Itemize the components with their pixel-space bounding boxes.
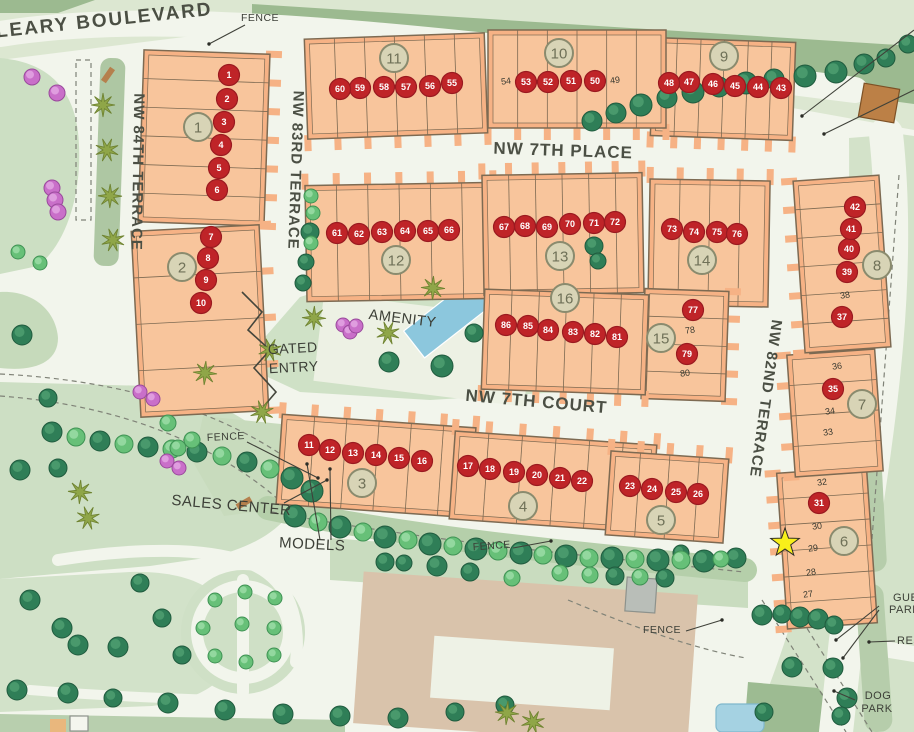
building-number-text: 3 [358, 475, 366, 492]
tree-highlight [133, 576, 142, 585]
lot-marker-76: 76 [727, 224, 748, 245]
lot-number: 85 [523, 321, 533, 331]
tree-highlight [241, 656, 248, 663]
lot-marker-26: 26 [688, 484, 709, 505]
building-1 [138, 46, 282, 230]
tree-highlight [826, 660, 836, 670]
tree-highlight [162, 417, 170, 425]
lot-marker-57: 57 [396, 77, 417, 98]
building-number-16: 16 [551, 284, 579, 312]
tree-highlight [303, 225, 312, 234]
tree-highlight [23, 592, 33, 602]
tree-highlight [26, 71, 34, 79]
lot-marker-74: 74 [684, 222, 705, 243]
tree-highlight [71, 637, 81, 647]
tree-highlight [41, 391, 50, 400]
tree-highlight [135, 386, 142, 393]
lot-marker-62: 62 [349, 224, 370, 245]
lot-number: 3 [221, 117, 226, 127]
lot-number: 13 [348, 448, 358, 458]
lot-number: 16 [417, 456, 427, 466]
lot-marker-41: 41 [841, 219, 862, 240]
tree-highlight [276, 706, 286, 716]
building-number-text: 10 [551, 45, 568, 62]
tree-highlight [210, 594, 217, 601]
lot-marker-17: 17 [458, 456, 479, 477]
building-number-15: 15 [647, 324, 675, 352]
lot-number-plain-36: 36 [831, 361, 842, 372]
tree-highlight [592, 255, 600, 263]
tree-highlight [584, 569, 592, 577]
lot-number: 18 [485, 464, 495, 474]
lot-marker-66: 66 [439, 220, 460, 241]
leader-dot [325, 478, 328, 481]
lot-marker-19: 19 [504, 462, 525, 483]
tree-highlight [422, 535, 433, 546]
lot-number: 17 [463, 461, 473, 471]
lot-marker-2: 2 [217, 89, 238, 110]
tree-highlight [13, 246, 20, 253]
tree-highlight [634, 571, 642, 579]
lot-number: 35 [828, 384, 838, 394]
lot-number-plain-28: 28 [805, 567, 816, 578]
tree-highlight [793, 609, 803, 619]
lot-marker-25: 25 [666, 482, 687, 503]
tree-highlight [297, 277, 305, 285]
lot-number: 51 [566, 76, 576, 86]
lot-marker-73: 73 [662, 219, 683, 240]
lot-number: 22 [577, 476, 587, 486]
leader-dot [834, 638, 837, 641]
lot-number: 66 [444, 225, 454, 235]
lot-number: 25 [671, 487, 681, 497]
lot-number-plain-33: 33 [822, 427, 833, 438]
tree-highlight [172, 442, 180, 450]
tree-highlight [463, 565, 472, 574]
lot-number-plain-54: 54 [500, 76, 511, 87]
lot-number: 8 [205, 253, 210, 263]
tree-highlight [15, 327, 25, 337]
lot-number-plain-34: 34 [824, 406, 835, 417]
tree-highlight [628, 552, 637, 561]
tree-highlight [582, 551, 591, 560]
lot-marker-60: 60 [330, 79, 351, 100]
tree-highlight [284, 469, 295, 480]
tree-highlight [377, 528, 388, 539]
lot-number: 41 [846, 224, 856, 234]
tree-highlight [270, 592, 277, 599]
map-label-guest-park-line2: PARK [889, 604, 914, 616]
lot-marker-72: 72 [605, 212, 626, 233]
lot-marker-71: 71 [584, 213, 605, 234]
tree-highlight [240, 454, 250, 464]
tree-highlight [148, 393, 155, 400]
lot-marker-85: 85 [518, 316, 539, 337]
lot-marker-63: 63 [372, 222, 393, 243]
tree-highlight [338, 319, 345, 326]
tree-highlight [155, 611, 164, 620]
tree-highlight [161, 695, 171, 705]
tree-highlight [51, 461, 60, 470]
lot-marker-20: 20 [527, 465, 548, 486]
lot-marker-48: 48 [659, 73, 680, 94]
lot-marker-12: 12 [320, 440, 341, 461]
lot-marker-45: 45 [725, 76, 746, 97]
lot-number: 43 [776, 83, 786, 93]
lot-marker-77: 77 [683, 300, 704, 321]
building-number-8: 8 [863, 251, 891, 279]
lot-number: 55 [447, 78, 457, 88]
lot-number: 61 [332, 228, 342, 238]
lot-marker-4: 4 [211, 135, 232, 156]
lot-marker-1: 1 [219, 65, 240, 86]
lot-number: 23 [625, 481, 635, 491]
lot-marker-8: 8 [198, 248, 219, 269]
lot-number: 1 [226, 70, 231, 80]
tree-highlight [558, 547, 569, 558]
building-number-10: 10 [545, 39, 573, 67]
palm-tree-icon [302, 306, 326, 330]
leader-dot [720, 618, 723, 621]
building-number-13: 13 [546, 242, 574, 270]
lot-number: 7 [208, 232, 213, 242]
lot-number: 52 [543, 77, 553, 87]
tree-highlight [69, 430, 78, 439]
tree-highlight [398, 557, 406, 565]
tree-highlight [13, 462, 23, 472]
lot-number: 2 [224, 94, 229, 104]
tree-highlight [382, 354, 392, 364]
tree-highlight [828, 63, 839, 74]
lot-number: 73 [667, 224, 677, 234]
map-label-dog-park-line1: DOG [865, 690, 892, 702]
tree-highlight [448, 705, 457, 714]
tree-highlight [106, 691, 115, 700]
lot-number: 4 [218, 140, 223, 150]
tree-highlight [696, 552, 707, 563]
site-plan-svg: 1234567891011121314151617181920212223242… [0, 0, 914, 732]
lot-number: 24 [647, 484, 657, 494]
leader-dot [841, 656, 844, 659]
tree-highlight [401, 533, 410, 542]
lot-marker-9: 9 [196, 270, 217, 291]
lot-marker-58: 58 [374, 77, 395, 98]
tree-highlight [811, 611, 821, 621]
tree-highlight [467, 326, 476, 335]
lot-number: 19 [509, 467, 519, 477]
tree-highlight [55, 620, 65, 630]
tree-highlight [117, 437, 126, 446]
lot-number: 6 [214, 185, 219, 195]
leader-dot [822, 132, 825, 135]
structure [858, 83, 899, 123]
map-label-fence-left: FENCE [207, 430, 246, 444]
lot-number: 42 [850, 202, 860, 212]
tree-highlight [755, 607, 765, 617]
lot-marker-70: 70 [560, 214, 581, 235]
lot-marker-50: 50 [585, 71, 606, 92]
tree-highlight [174, 462, 181, 469]
lot-number: 86 [501, 320, 511, 330]
lot-number: 77 [688, 305, 698, 315]
tree-highlight [46, 182, 54, 190]
tree-highlight [333, 708, 343, 718]
lot-number: 12 [325, 445, 335, 455]
leader-dot [328, 467, 331, 470]
tree-highlight [498, 698, 507, 707]
building-number-text: 8 [873, 257, 881, 274]
lot-marker-43: 43 [771, 78, 792, 99]
tree-highlight [715, 553, 723, 561]
lot-number: 68 [520, 221, 530, 231]
structure [50, 719, 66, 732]
lot-marker-3: 3 [214, 112, 235, 133]
tree-highlight [300, 256, 308, 264]
tree-highlight [608, 569, 617, 578]
lot-marker-46: 46 [703, 74, 724, 95]
lot-marker-40: 40 [839, 239, 860, 260]
tree-highlight [797, 67, 808, 78]
lot-number: 59 [355, 83, 365, 93]
tree-highlight [658, 571, 667, 580]
lot-marker-55: 55 [442, 73, 463, 94]
lot-marker-65: 65 [418, 221, 439, 242]
tree-highlight [306, 237, 313, 244]
tree-highlight [218, 702, 228, 712]
lot-marker-79: 79 [677, 344, 698, 365]
lot-marker-81: 81 [607, 327, 628, 348]
lot-marker-39: 39 [837, 262, 858, 283]
building-number-text: 14 [694, 252, 711, 269]
leader-dot [316, 476, 319, 479]
lot-number-plain-80: 80 [679, 368, 690, 379]
building-number-text: 15 [653, 330, 670, 347]
building-number-5: 5 [647, 506, 675, 534]
building-number-text: 13 [552, 248, 569, 265]
lot-number: 75 [712, 227, 722, 237]
lot-number-plain-29: 29 [807, 543, 818, 554]
lot-number: 64 [400, 226, 410, 236]
tree-highlight [757, 705, 766, 714]
lot-number: 63 [377, 227, 387, 237]
building-number-2: 2 [168, 253, 196, 281]
building-number-text: 11 [386, 50, 402, 67]
structure [70, 716, 88, 731]
lot-number: 69 [542, 222, 552, 232]
lot-number-plain-49: 49 [609, 75, 620, 86]
lot-marker-83: 83 [563, 322, 584, 343]
lot-number-plain-38: 38 [839, 290, 850, 301]
building-number-6: 6 [830, 527, 858, 555]
lot-marker-59: 59 [350, 78, 371, 99]
building-number-text: 5 [657, 512, 665, 529]
lot-number: 72 [610, 217, 620, 227]
lot-marker-51: 51 [561, 71, 582, 92]
lot-number: 48 [664, 78, 674, 88]
lot-number: 45 [730, 81, 740, 91]
lot-number: 84 [543, 325, 553, 335]
tree-highlight [215, 449, 224, 458]
lot-number: 53 [521, 77, 531, 87]
site-plan-map: 1234567891011121314151617181920212223242… [0, 0, 914, 732]
lot-marker-86: 86 [496, 315, 517, 336]
building-number-text: 1 [194, 119, 202, 136]
lot-marker-15: 15 [389, 448, 410, 469]
building-number-4: 4 [509, 492, 537, 520]
lot-marker-56: 56 [420, 76, 441, 97]
lot-number: 31 [814, 498, 824, 508]
lot-marker-53: 53 [516, 72, 537, 93]
building-number-1: 1 [184, 113, 212, 141]
map-label-gated-entry-line1: GATED [268, 339, 318, 358]
lot-number-plain-32: 32 [816, 477, 827, 488]
lot-marker-82: 82 [585, 324, 606, 345]
lot-number: 46 [708, 79, 718, 89]
tree-highlight [633, 96, 644, 107]
lot-marker-47: 47 [679, 72, 700, 93]
tree-highlight [175, 648, 184, 657]
lot-number: 15 [394, 453, 404, 463]
lot-number: 37 [837, 312, 847, 322]
tree-highlight [141, 439, 151, 449]
tree-highlight [585, 113, 595, 123]
tree-highlight [35, 257, 42, 264]
lot-number-plain-27: 27 [802, 589, 813, 600]
tree-highlight [587, 239, 596, 248]
tree-highlight [554, 567, 562, 575]
tree-highlight [269, 649, 276, 656]
tree-highlight [10, 682, 20, 692]
lot-marker-14: 14 [366, 445, 387, 466]
lot-marker-35: 35 [823, 379, 844, 400]
tree-highlight [351, 320, 358, 327]
building-number-14: 14 [688, 246, 716, 274]
lot-number: 11 [304, 440, 314, 450]
leader-dot [305, 462, 308, 465]
tree-highlight [332, 518, 343, 529]
lot-number: 21 [555, 473, 565, 483]
leader-dot [800, 114, 803, 117]
palm-tree-icon [91, 93, 115, 117]
lot-number: 9 [203, 275, 208, 285]
lot-number: 57 [401, 82, 411, 92]
building-number-text: 7 [858, 396, 866, 413]
building-number-9: 9 [710, 42, 738, 70]
lot-number: 74 [689, 227, 699, 237]
map-label-guest-park-line1: GUE [893, 592, 914, 604]
tree-highlight [430, 558, 440, 568]
lot-marker-52: 52 [538, 72, 559, 93]
lot-number-plain-30: 30 [811, 521, 822, 532]
lot-number: 5 [216, 163, 221, 173]
tree-highlight [674, 553, 683, 562]
map-label-models: MODELS [279, 534, 346, 554]
building-number-text: 6 [840, 533, 848, 550]
tree-highlight [650, 551, 661, 562]
tree-highlight [111, 639, 121, 649]
tree-highlight [536, 548, 545, 557]
leader-dot [549, 539, 552, 542]
lot-marker-6: 6 [207, 180, 228, 201]
tree-highlight [269, 622, 276, 629]
lot-number: 56 [425, 81, 435, 91]
lot-number: 50 [590, 76, 600, 86]
tree-highlight [609, 105, 619, 115]
tree-highlight [49, 194, 57, 202]
building-number-12: 12 [382, 246, 410, 274]
lot-marker-64: 64 [395, 221, 416, 242]
leader-dot [867, 640, 870, 643]
tree-highlight [52, 206, 60, 214]
tree-highlight [356, 525, 365, 534]
lot-marker-11: 11 [299, 435, 320, 456]
tree-highlight [186, 434, 194, 442]
tree-highlight [827, 618, 836, 627]
lot-number: 47 [684, 77, 694, 87]
tree-highlight [45, 424, 55, 434]
lot-number: 70 [565, 219, 575, 229]
tree-highlight [857, 56, 867, 66]
map-label-dog-park-line2: PARK [861, 703, 892, 715]
lot-number: 82 [590, 329, 600, 339]
lot-number: 26 [693, 489, 703, 499]
map-label-gated-entry-line2: ENTRY [269, 358, 320, 377]
building-number-text: 12 [388, 252, 405, 269]
lot-marker-7: 7 [201, 227, 222, 248]
street-label-nw-84th-terrace: NW 84TH TERRACE [128, 93, 148, 251]
lot-marker-67: 67 [494, 217, 515, 238]
lot-number-plain-78: 78 [684, 325, 695, 336]
lot-number: 40 [844, 244, 854, 254]
lot-number: 76 [732, 229, 742, 239]
tree-highlight [198, 622, 205, 629]
tree-highlight [240, 586, 247, 593]
lot-marker-44: 44 [748, 77, 769, 98]
map-label-fence-top: FENCE [241, 12, 279, 24]
lot-marker-16: 16 [412, 451, 433, 472]
tree-highlight [61, 685, 71, 695]
building-number-7: 7 [848, 390, 876, 418]
lot-number: 71 [589, 218, 599, 228]
tree-highlight [834, 709, 843, 718]
tree-highlight [162, 455, 169, 462]
lot-marker-75: 75 [707, 222, 728, 243]
tree-highlight [446, 539, 455, 548]
tree-highlight [51, 87, 59, 95]
leader-dot [207, 42, 210, 45]
lot-number: 10 [196, 298, 206, 308]
tree-highlight [775, 607, 784, 616]
map-label-res: RES [897, 635, 914, 647]
lot-number: 81 [612, 332, 622, 342]
lot-marker-13: 13 [343, 443, 364, 464]
tree-highlight [729, 550, 739, 560]
tree-highlight [237, 618, 244, 625]
lot-number: 60 [335, 84, 345, 94]
structure [430, 636, 614, 710]
lot-marker-42: 42 [845, 197, 866, 218]
building-number-text: 9 [720, 48, 728, 65]
tree-highlight [506, 572, 514, 580]
tree-highlight [604, 549, 615, 560]
leader-dot [832, 689, 835, 692]
lot-marker-61: 61 [327, 223, 348, 244]
lot-number: 62 [354, 229, 364, 239]
tree-highlight [434, 357, 445, 368]
lot-number: 58 [379, 82, 389, 92]
lot-marker-84: 84 [538, 320, 559, 341]
lot-number: 44 [753, 82, 763, 92]
